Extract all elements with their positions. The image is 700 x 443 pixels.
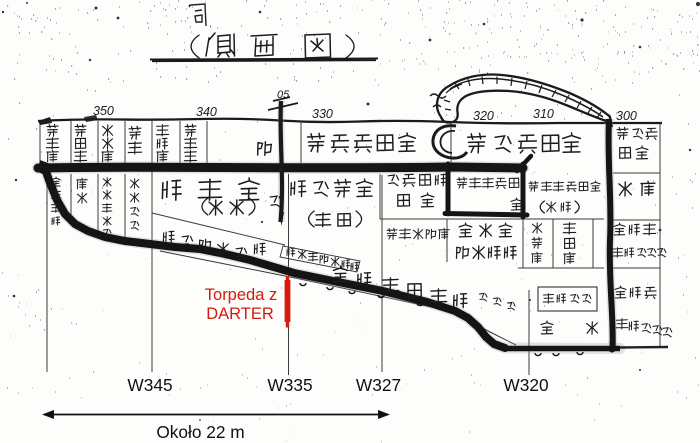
svg-text:W327: W327 <box>356 375 401 395</box>
svg-text:300: 300 <box>616 109 637 123</box>
svg-text:320: 320 <box>473 109 494 123</box>
svg-text:W345: W345 <box>127 375 172 395</box>
svg-text:W335: W335 <box>267 375 312 395</box>
svg-text:Torpeda z: Torpeda z <box>205 286 277 304</box>
svg-text:DARTER: DARTER <box>206 305 274 323</box>
svg-text:330: 330 <box>312 107 333 121</box>
svg-text:340: 340 <box>196 105 217 119</box>
svg-text:Około 22 m: Około 22 m <box>156 422 244 442</box>
svg-text:W320: W320 <box>503 375 548 395</box>
svg-text:310: 310 <box>533 107 554 121</box>
